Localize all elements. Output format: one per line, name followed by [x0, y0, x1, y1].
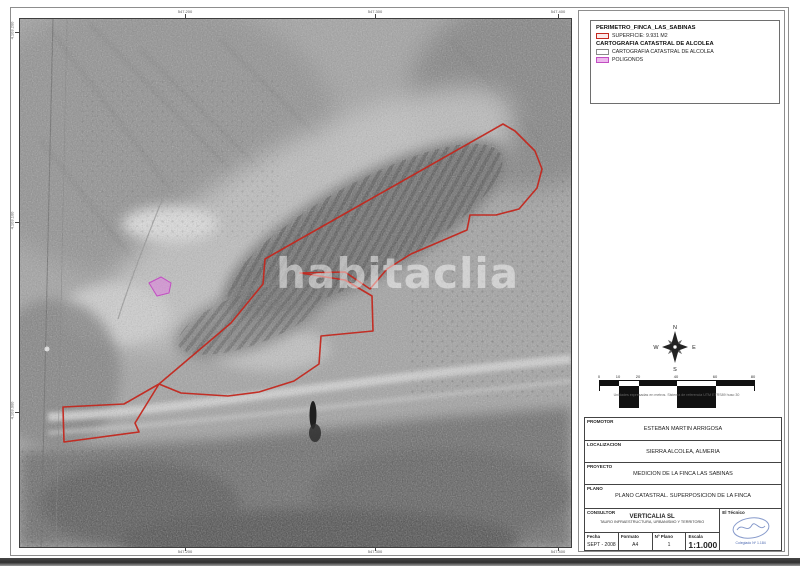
plano-row: PLANO PLANO CATASTRAL. SUPERPOSICION DE …	[585, 485, 781, 509]
tecnico-cell: El Técnico Colegiado Nº 1.184	[720, 509, 781, 550]
fecha-cell: Fecha SEPT - 2008	[585, 533, 619, 550]
formato-value: A4	[619, 542, 652, 548]
formato-label: Formato	[619, 533, 652, 539]
compass-e: E	[692, 345, 696, 351]
coord-label-top: 547.300	[368, 9, 382, 14]
page-bottom-shadow	[0, 558, 800, 566]
tick-mark	[15, 32, 19, 33]
tick-mark	[185, 14, 186, 18]
scale-tick: 20	[636, 374, 640, 379]
promotor-row: PROMOTOR ESTEBAN MARTIN ARRIGOSA	[585, 418, 781, 441]
nplano-label: Nº Plano	[653, 533, 686, 539]
scale-bar-graphic	[599, 380, 755, 391]
watermark: habitaclia	[276, 249, 519, 298]
nplano-cell: Nº Plano 1	[653, 533, 687, 550]
legend-item-poligonos: POLIGONOS	[596, 57, 774, 63]
legend-title-cartografia: CARTOGRAFIA CATASTRAL DE ALCOLEA	[596, 41, 774, 47]
tecnico-subtitle: Colegiado Nº 1.184	[735, 541, 765, 545]
legend-item-catastral: CARTOGRAFIA CATASTRAL DE ALCOLEA	[596, 49, 774, 55]
title-block: PROMOTOR ESTEBAN MARTIN ARRIGOSA LOCALIZ…	[584, 417, 782, 551]
coord-label-left: 4.103.100	[9, 212, 14, 230]
proyecto-row: PROYECTO MEDICION DE LA FINCA LAS SABINA…	[585, 463, 781, 485]
scale-tick: 60	[713, 374, 717, 379]
consultor-subtitle: TAURO INFRAESTRUCTURA, URBANISMO Y TERRI…	[585, 520, 719, 524]
compass-n: N	[673, 325, 677, 331]
formato-cell: Formato A4	[619, 533, 653, 550]
fecha-label: Fecha	[585, 533, 618, 539]
stamp-signature	[730, 515, 772, 541]
coord-label-bottom: 547.200	[178, 549, 192, 554]
scale-bar: 0 10 20 40 60 80 Unidades expresadas en …	[599, 374, 755, 398]
aerial-map: habitaclia	[19, 18, 572, 548]
legend-superficie-label: SUPERFICIE: 9.931 M2	[612, 33, 668, 39]
legend-box: PERIMETRO_FINCA_LAS_SABINAS SUPERFICIE: …	[590, 20, 780, 104]
poligonos-swatch	[596, 57, 609, 63]
promotor-value: ESTEBAN MARTIN ARRIGOSA	[585, 424, 781, 432]
coord-label-bottom: 547.300	[368, 549, 382, 554]
consultor-cell: CONSULTOR VERTICALIA SL TAURO INFRAESTRU…	[585, 509, 719, 533]
nplano-value: 1	[653, 542, 686, 548]
perimeter-swatch	[596, 33, 609, 39]
legend-item-superficie: SUPERFICIE: 9.931 M2	[596, 33, 774, 39]
scale-tick: 0	[598, 374, 600, 379]
legend-catastral-label: CARTOGRAFIA CATASTRAL DE ALCOLEA	[612, 49, 714, 55]
coord-label-left: 4.103.200	[9, 22, 14, 40]
coord-label-left: 4.103.000	[9, 402, 14, 420]
scanned-cadastral-plan: habitaclia 547.200 547.300 547.400 547.2…	[0, 0, 800, 566]
plano-value: PLANO CATASTRAL. SUPERPOSICION DE LA FIN…	[585, 491, 781, 499]
escala-cell: Escala 1:1.000	[686, 533, 719, 550]
catastral-swatch	[596, 49, 609, 55]
tick-mark	[15, 222, 19, 223]
proyecto-value: MEDICION DE LA FINCA LAS SABINAS	[585, 469, 781, 477]
coord-label-top: 547.400	[551, 9, 565, 14]
compass-rose: N S E W	[647, 322, 703, 374]
coord-label-bottom: 547.400	[551, 549, 565, 554]
compass-s: S	[673, 367, 677, 373]
localizacion-row: LOCALIZACION SIERRA ALCOLEA, ALMERIA	[585, 441, 781, 463]
legend-poligonos-label: POLIGONOS	[612, 57, 643, 63]
localizacion-value: SIERRA ALCOLEA, ALMERIA	[585, 447, 781, 455]
coord-label-top: 547.200	[178, 9, 192, 14]
tick-mark	[375, 14, 376, 18]
fecha-value: SEPT - 2008	[585, 542, 618, 548]
scale-note: Unidades expresadas en metros. Sistema d…	[574, 393, 779, 397]
tick-mark	[558, 14, 559, 18]
escala-label: Escala	[686, 533, 719, 539]
legend-title-perimetro: PERIMETRO_FINCA_LAS_SABINAS	[596, 25, 774, 31]
tick-mark	[15, 412, 19, 413]
compass-w: W	[653, 345, 659, 351]
scale-tick: 80	[751, 374, 755, 379]
scale-tick: 10	[616, 374, 620, 379]
scale-tick: 40	[674, 374, 678, 379]
escala-value: 1:1.000	[686, 540, 719, 550]
